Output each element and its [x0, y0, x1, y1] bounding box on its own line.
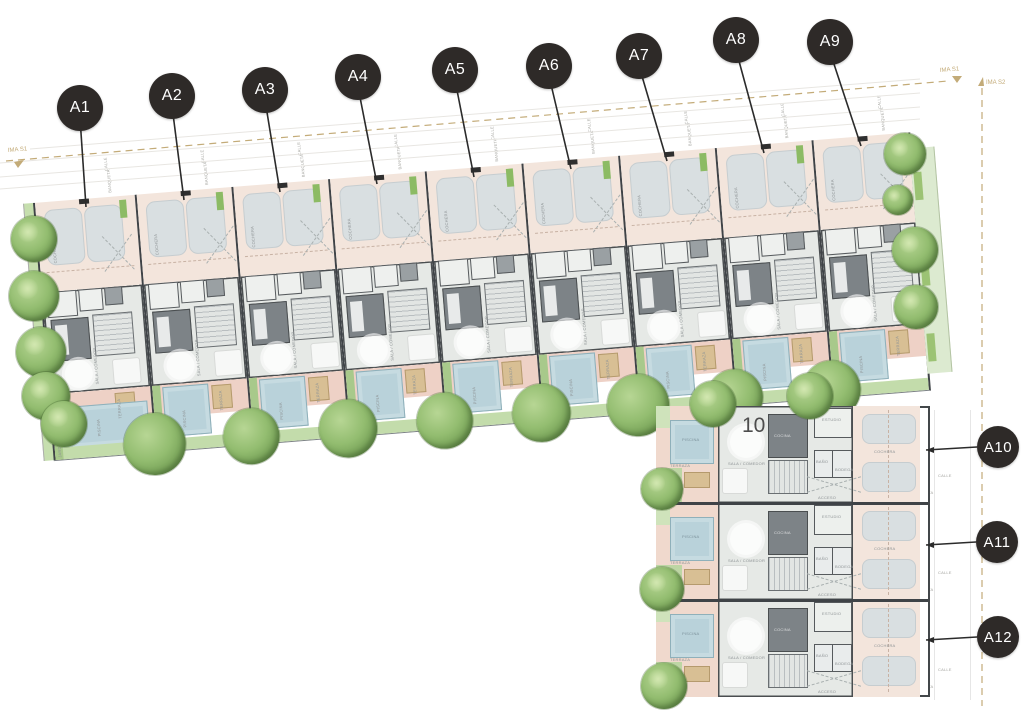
- pool: [670, 517, 714, 561]
- car-spot: [862, 559, 916, 589]
- street-line: [970, 410, 971, 700]
- planting-strip: [119, 200, 127, 219]
- stairs: [677, 264, 720, 309]
- kitchen-counter: [737, 270, 751, 301]
- planting-strip: [913, 172, 923, 201]
- boundary-label: IMA S2: [986, 80, 1006, 86]
- couch: [213, 349, 243, 377]
- bath-label: BAÑO: [816, 654, 828, 658]
- stairs: [387, 288, 430, 333]
- garage-label: COCHERA: [874, 450, 895, 454]
- driveway-dashed-line: [888, 507, 889, 595]
- studio-label: ESTUDIO: [822, 418, 841, 422]
- tree-icon: [640, 567, 684, 611]
- tree-icon: [641, 663, 687, 709]
- access-label: ACCESO: [818, 496, 836, 500]
- boundary-label: IMA S1: [8, 146, 28, 154]
- sidewalk-label: BANQUETA: [203, 162, 209, 186]
- unit-marker-label: A4: [348, 68, 369, 86]
- tree-icon: [690, 381, 736, 427]
- car-spot: [242, 191, 284, 250]
- tree-icon: [11, 216, 57, 262]
- driveway-dashed-line: [888, 410, 889, 498]
- closet: [689, 239, 708, 258]
- tree-icon: [894, 285, 938, 329]
- room: [857, 225, 883, 249]
- room: [567, 248, 593, 272]
- car-spot: [435, 176, 477, 235]
- leader-tick: [79, 199, 89, 205]
- couch: [697, 310, 727, 338]
- stairs: [768, 460, 808, 494]
- boundary-label: IMA S1: [940, 66, 960, 74]
- site-plan: COCHERA SALA / COMEDOR TERRAZA PISCINA J…: [0, 0, 1024, 721]
- stairs: [92, 311, 135, 356]
- bath-storage-room: [814, 450, 852, 478]
- access-label: ACCESO: [818, 593, 836, 597]
- unit-marker-a3[interactable]: A3: [242, 67, 288, 113]
- couch: [722, 468, 748, 494]
- studio-room: [814, 602, 852, 632]
- tree-icon: [41, 401, 87, 447]
- wall: [832, 547, 833, 575]
- terrace-label: TERRAZA: [670, 658, 690, 662]
- sidewalk-label: BANQUETA: [590, 130, 596, 154]
- sidewalk-label: BANQUETA: [493, 138, 499, 162]
- tree-icon: [9, 271, 59, 321]
- stairs: [768, 654, 808, 688]
- unit-marker-a7[interactable]: A7: [616, 33, 662, 79]
- leader-tick: [181, 190, 191, 196]
- unit-marker-label: A5: [445, 61, 466, 79]
- closet: [786, 231, 805, 250]
- planting-strip: [409, 176, 417, 195]
- couch: [310, 341, 340, 369]
- room: [438, 258, 470, 286]
- planting-strip: [926, 333, 936, 362]
- room: [825, 227, 857, 255]
- tree-icon: [641, 468, 683, 510]
- couch: [722, 565, 748, 591]
- unit-marker-a8[interactable]: A8: [713, 17, 759, 63]
- dining-table: [730, 620, 762, 652]
- unit-marker-a6[interactable]: A6: [526, 43, 572, 89]
- kitchen-counter: [640, 278, 654, 309]
- pool: [670, 614, 714, 658]
- closet: [302, 270, 321, 289]
- car-spot: [725, 152, 767, 211]
- stairs: [194, 303, 237, 348]
- studio-label: ESTUDIO: [822, 612, 841, 616]
- unit-marker-label: A12: [984, 629, 1012, 646]
- dining-table: [730, 523, 762, 555]
- garden-strip: [656, 406, 670, 428]
- living-dining-label: SALA / COMEDOR: [728, 462, 765, 466]
- unit-marker-a10[interactable]: A10: [977, 426, 1019, 468]
- unit-marker-a1[interactable]: A1: [57, 85, 103, 131]
- room: [631, 243, 663, 271]
- planting-strip: [312, 184, 320, 203]
- sidewalk-label: BANQUETA: [880, 107, 886, 131]
- studio-label: ESTUDIO: [822, 515, 841, 519]
- car-spot: [822, 144, 864, 203]
- stairs: [768, 557, 808, 591]
- planting-strip: [602, 161, 610, 180]
- closet: [592, 247, 611, 266]
- car-spot: [862, 656, 916, 686]
- planting-strip: [699, 153, 707, 172]
- kitchen-counter: [543, 285, 557, 316]
- stairs: [484, 280, 527, 325]
- car-spot: [862, 414, 916, 444]
- unit-marker-label: A10: [984, 439, 1012, 456]
- tree-icon: [16, 327, 66, 377]
- party-wall: [658, 599, 928, 602]
- street-label: CALLE: [938, 668, 952, 672]
- tree-icon: [883, 185, 913, 215]
- wall: [832, 644, 833, 672]
- terrace-label: TERRAZA: [670, 561, 690, 565]
- room: [148, 282, 180, 310]
- planting-strip: [506, 168, 514, 187]
- unit-marker-a12[interactable]: A12: [977, 616, 1019, 658]
- lot-number: 10: [742, 414, 765, 438]
- garage-label: COCHERA: [874, 644, 895, 648]
- access-label: ACCESO: [818, 690, 836, 694]
- terrace-table: [684, 472, 710, 488]
- party-wall: [658, 502, 928, 505]
- leader-tick: [277, 183, 287, 189]
- unit-marker-label: A3: [255, 81, 276, 99]
- closet: [206, 278, 225, 297]
- unit-marker-a4[interactable]: A4: [335, 54, 381, 100]
- bath-storage-room: [814, 644, 852, 672]
- pool: [670, 420, 714, 464]
- room: [341, 266, 373, 294]
- car-spot: [145, 199, 187, 258]
- room: [373, 264, 399, 288]
- leader-tick: [374, 175, 384, 181]
- pool-label: PISCINA: [682, 438, 699, 442]
- leader-tick: [761, 144, 771, 150]
- unit-marker-a5[interactable]: A5: [432, 47, 478, 93]
- room: [245, 274, 277, 302]
- room: [760, 233, 786, 257]
- planting-strip: [216, 192, 224, 211]
- tree-icon: [787, 373, 833, 419]
- car-spot: [339, 183, 381, 242]
- leader-tick: [471, 167, 481, 173]
- street-label: CALLE: [938, 571, 952, 575]
- room: [535, 251, 567, 279]
- unit-marker-label: A7: [629, 47, 650, 65]
- unit-marker-label: A6: [539, 57, 560, 75]
- kitchen-counter: [350, 301, 364, 332]
- room: [180, 280, 206, 304]
- room: [470, 256, 496, 280]
- unit-marker-a9[interactable]: A9: [807, 19, 853, 65]
- street-label: CALLE: [938, 474, 952, 478]
- column-unit-a12: PISCINA TERRAZA JARDÍN SALA / COMEDOR CO…: [656, 600, 930, 697]
- unit-marker-label: A8: [726, 31, 747, 49]
- couch: [600, 318, 630, 346]
- couch: [112, 357, 142, 385]
- sidewalk-label: BANQUETA: [106, 169, 112, 193]
- room: [728, 235, 760, 263]
- closet: [399, 262, 418, 281]
- column-unit-a11: PISCINA TERRAZA JARDÍN SALA / COMEDOR CO…: [656, 503, 930, 600]
- room: [663, 241, 689, 265]
- stairs: [291, 295, 334, 340]
- garage-label: COCHERA: [874, 547, 895, 551]
- sidewalk-label: BANQUETA: [396, 146, 402, 170]
- closet: [496, 255, 515, 274]
- kitchen-counter: [447, 293, 461, 324]
- unit-marker-a11[interactable]: A11: [976, 521, 1018, 563]
- leader-tick: [567, 159, 577, 165]
- street-line: [934, 410, 935, 700]
- car-spot: [862, 511, 916, 541]
- unit-marker-label: A2: [162, 87, 183, 105]
- bath-storage-room: [814, 547, 852, 575]
- column-block-a10-a12: PISCINA TERRAZA JARDÍN SALA / COMEDOR CO…: [656, 406, 930, 697]
- bath-label: BAÑO: [816, 557, 828, 561]
- tree-icon: [884, 133, 926, 175]
- kitchen-label: COCINA: [774, 531, 791, 535]
- unit-marker-label: A9: [820, 33, 841, 51]
- living-dining-label: SALA / COMEDOR: [728, 656, 765, 660]
- wall: [832, 450, 833, 478]
- bath-label: BAÑO: [816, 460, 828, 464]
- car-spot: [862, 462, 916, 492]
- terrace-label: TERRAZA: [670, 464, 690, 468]
- sidewalk-label: BANQUETA: [300, 154, 306, 178]
- car-spot: [629, 160, 671, 219]
- storage-label: BODEGA: [835, 565, 853, 569]
- couch: [407, 333, 437, 361]
- car-spot: [862, 608, 916, 638]
- kitchen-counter: [157, 316, 171, 347]
- sidewalk-label: BANQUETA: [686, 123, 692, 147]
- storage-label: BODEGA: [835, 662, 853, 666]
- leader-tick: [664, 151, 674, 157]
- couch: [504, 325, 534, 353]
- terrace-table: [684, 569, 710, 585]
- tree-icon: [892, 227, 938, 273]
- planting-strip: [796, 145, 804, 164]
- unit-marker-a2[interactable]: A2: [149, 73, 195, 119]
- kitchen-label: COCINA: [774, 434, 791, 438]
- leader-tick: [857, 136, 867, 142]
- stairs: [774, 257, 817, 302]
- sidewalk-label: BANQUETA: [783, 115, 789, 139]
- car-spot: [532, 168, 574, 227]
- closet: [104, 286, 123, 305]
- room: [78, 288, 104, 312]
- kitchen-counter: [253, 309, 267, 340]
- living-dining-label: SALA / COMEDOR: [728, 559, 765, 563]
- pool-label: PISCINA: [682, 632, 699, 636]
- couch: [794, 302, 824, 330]
- kitchen-label: COCINA: [774, 628, 791, 632]
- kitchen-counter: [833, 262, 847, 293]
- studio-room: [814, 505, 852, 535]
- couch: [722, 662, 748, 688]
- unit-marker-label: A1: [70, 99, 91, 117]
- driveway-dashed-line: [888, 604, 889, 692]
- terrace-table: [684, 666, 710, 682]
- storage-label: BODEGA: [835, 468, 853, 472]
- stairs: [581, 272, 624, 317]
- unit-marker-label: A11: [983, 534, 1010, 551]
- room: [276, 272, 302, 296]
- pool-label: PISCINA: [682, 535, 699, 539]
